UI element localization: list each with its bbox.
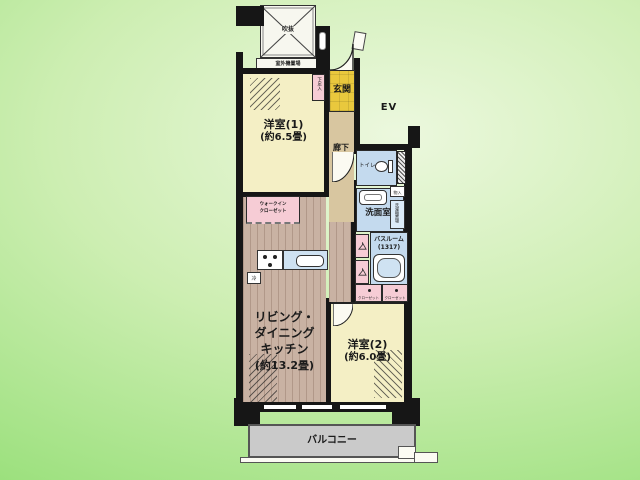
toilet-door-arc-icon [332,152,354,182]
bathroom-name: バスルーム [369,236,409,244]
shoe-cabinet: 下足入 [312,74,325,101]
void-area: 吹抜 [260,5,316,58]
room1-size: (約6.5畳) [243,132,324,145]
bathroom-size: (1317) [369,244,409,252]
closet-left-label: クローゼット [356,296,381,300]
hallway-lower [329,222,351,302]
hall-closet-upper [355,234,369,258]
room2-name: 洋室(2) [331,338,404,352]
floorplan-screen: 吹抜 室外機置場 洋室(1) (約6.5畳) 下足入 玄関 廊下 [0,0,640,480]
closet-left: クローゼット [355,284,382,302]
room2-size: (約6.0畳) [331,352,404,365]
wall-left [236,52,243,410]
meter-box [397,151,406,184]
pillar-bottom-left [234,398,260,426]
wic-line2: クローゼット [247,209,299,215]
ldk-line2: ダイニング [243,326,326,341]
elevator-label: EV [376,102,402,115]
toilet-label: トイレ [359,163,376,170]
entrance-label: 玄関 [329,85,355,96]
fridge-space: 冷 [247,272,261,284]
fridge-label: 冷 [248,276,260,282]
pillar-ev [408,126,420,148]
pillar-bottom-right [392,398,420,426]
hanger-icon [358,242,367,251]
stove-icon [257,250,283,270]
wic-line1: ウォークイン [247,202,299,208]
ldk-line1: リビング・ [243,310,326,325]
window-segment [302,405,332,409]
ldk-size: (約13.2畳) [243,359,326,373]
window-segment [264,405,296,409]
shoe-cabinet-label: 下足入 [316,77,322,91]
void-label: 吹抜 [281,26,295,34]
balcony-step-lower [414,452,438,463]
toilet-tank-icon [388,160,393,173]
storage-box: 物入 [390,186,405,197]
toilet-icon [375,161,388,172]
storage-label: 物入 [391,190,404,195]
room2-door-arc-icon [333,304,353,326]
closet-pole-dot [368,289,371,292]
walk-in-closet: ウォークイン クローゼット [246,196,300,224]
balcony-label: バルコニー [250,435,414,448]
laundry-box: 洗濯機置場 [390,200,405,229]
hall-closet-lower [355,260,369,284]
kitchen-sink-icon [296,255,324,267]
pillar-top-left [236,6,264,26]
kitchen-counter [283,250,328,270]
outdoor-unit-label: 室外機置場 [257,61,319,67]
balcony: バルコニー [248,424,416,458]
entrance-door-arc-icon [330,44,354,70]
closet-right-label: クローゼット [383,296,407,300]
sink-icon [359,190,387,205]
service-door-icon [319,32,326,50]
window-shade-room1 [250,78,280,110]
toilet-room: トイレ [356,150,397,186]
laundry-label: 洗濯機置場 [395,203,400,223]
bathtub-icon [373,254,405,282]
closet-right: クローゼット [382,284,408,302]
room1-name: 洋室(1) [243,118,324,132]
ldk-line3: キッチン [243,342,326,357]
hanger-icon [358,268,367,277]
closet-pole-dot [395,289,398,292]
window-segment [340,405,386,409]
